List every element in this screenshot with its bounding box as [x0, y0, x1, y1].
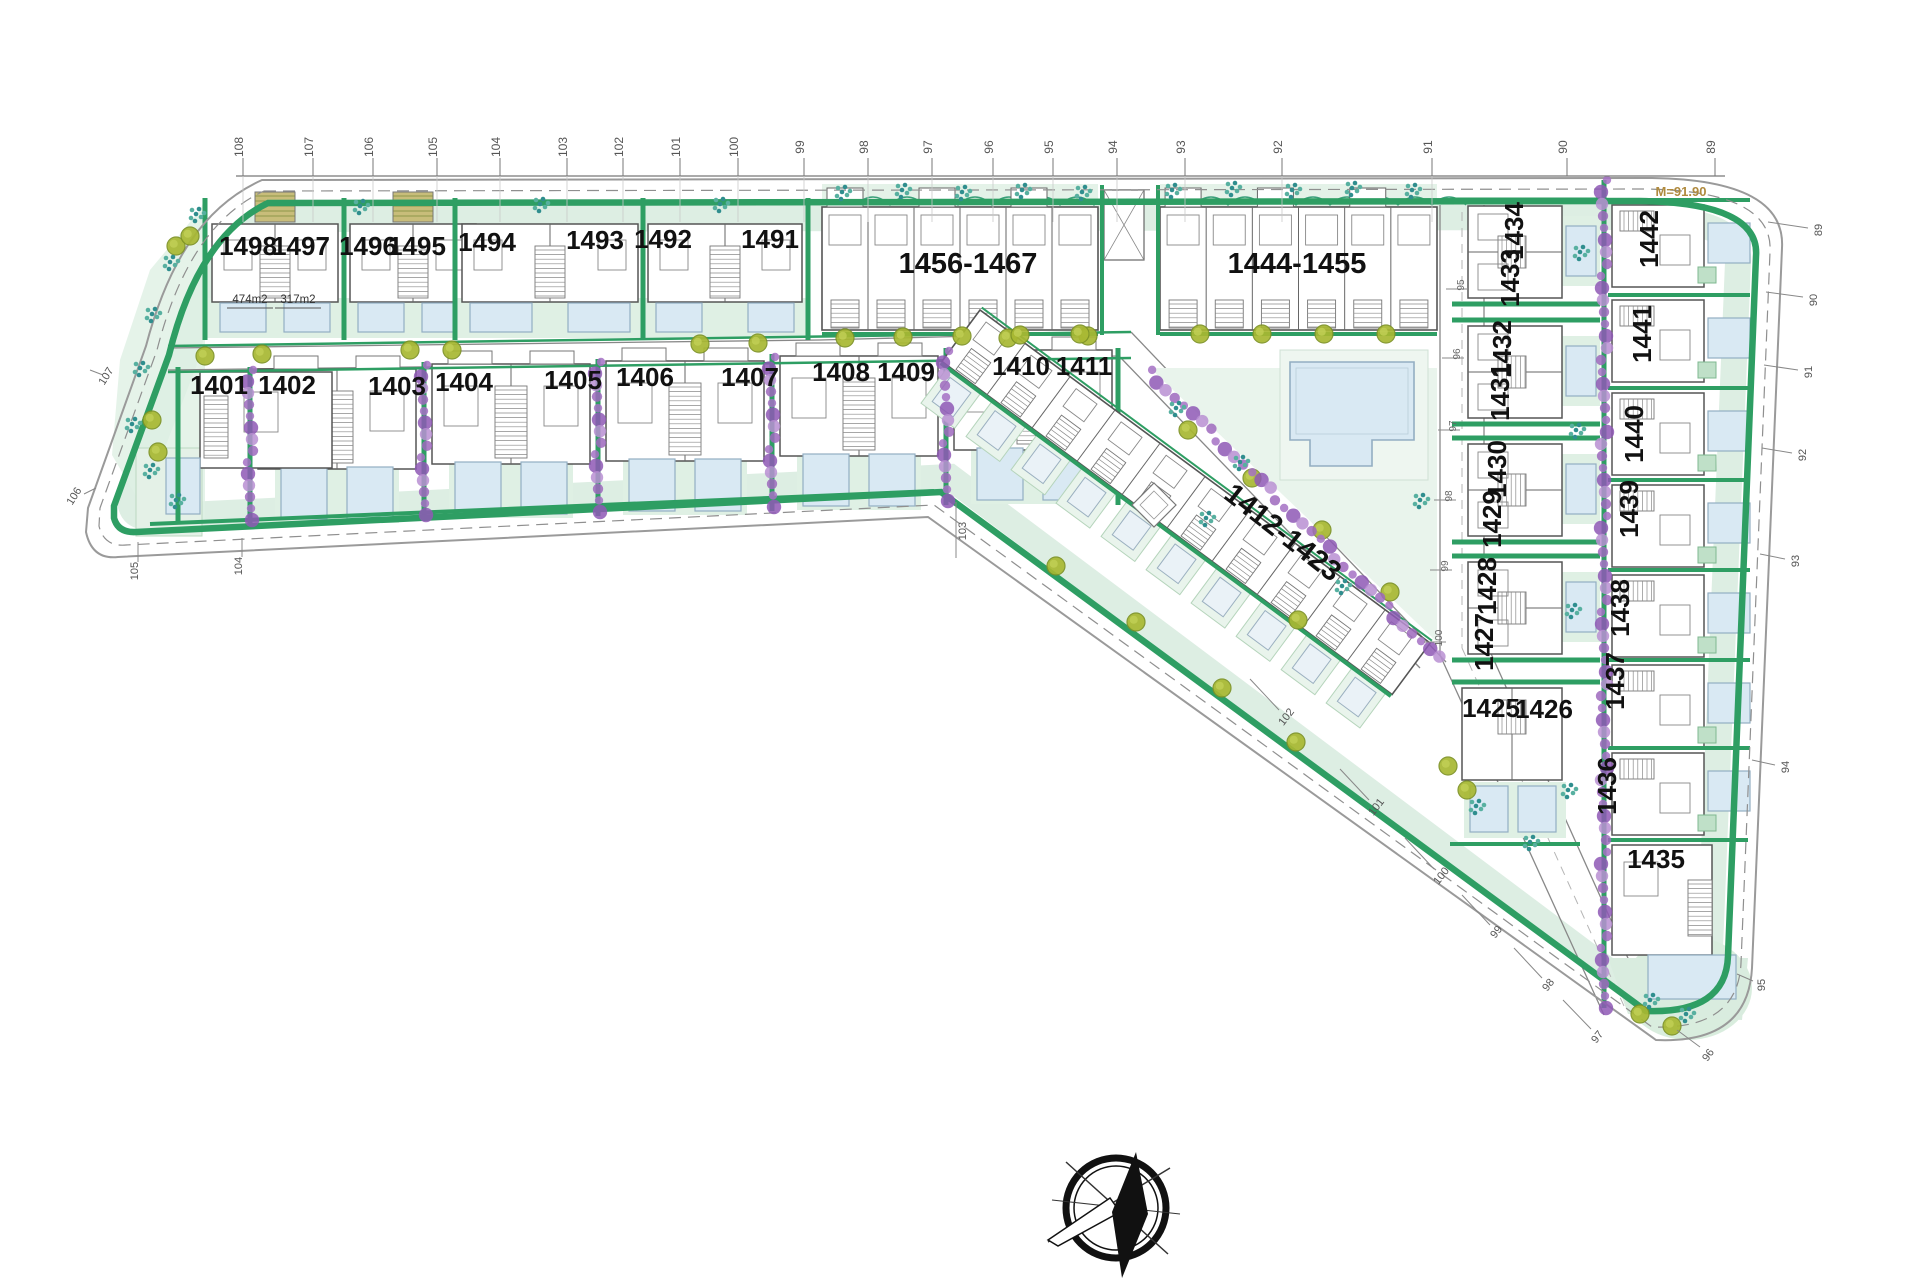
tree-icon	[1179, 421, 1197, 439]
plot-number: 1442	[1634, 210, 1664, 268]
block-number: 1444-1455	[1228, 248, 1367, 280]
tree-icon	[149, 443, 167, 461]
tree-icon	[1287, 733, 1305, 751]
stairs-hatch	[1061, 300, 1089, 328]
stairs-hatch	[535, 246, 565, 298]
stairs-hatch	[831, 300, 859, 328]
tree-icon	[196, 347, 214, 365]
tree-icon	[1315, 325, 1333, 343]
road-tick-label: 98	[1444, 490, 1455, 502]
area-label: 474m2	[232, 294, 267, 306]
stairs-hatch	[1400, 300, 1428, 328]
stairs-hatch	[1688, 880, 1712, 936]
stairs-hatch	[1169, 300, 1197, 328]
site-plan-canvas: 1081071061051041031021011009998979695949…	[0, 0, 1920, 1280]
edge-tick-label: 89	[1813, 224, 1825, 236]
area-label: 317m2	[280, 294, 315, 306]
ruler-label: 91	[1421, 140, 1435, 154]
ruler-label: 99	[793, 140, 807, 154]
edge-tick-label: 90	[1808, 294, 1820, 306]
tree-icon	[836, 329, 854, 347]
stairs-hatch	[204, 396, 228, 458]
plot-number: 1425	[1462, 693, 1520, 723]
tree-icon	[1253, 325, 1271, 343]
tree-icon	[1213, 679, 1231, 697]
tree-icon	[1127, 613, 1145, 631]
plot-number: 1401	[190, 370, 248, 400]
plot-number: 1437	[1600, 652, 1630, 710]
road-tick-label: 95	[1456, 279, 1467, 291]
ruler-label: 107	[302, 137, 316, 157]
tree-icon	[749, 334, 767, 352]
road-tick-label: 97	[1448, 420, 1459, 432]
plot-number: 1406	[616, 362, 674, 392]
tree-icon	[1439, 757, 1457, 775]
tree-icon	[953, 327, 971, 345]
plot-number: 1491	[741, 224, 799, 254]
edge-tick-label: 93	[1790, 555, 1802, 567]
plot-number: 1438	[1605, 579, 1635, 637]
plan-root: 1081071061051041031021011009998979695949…	[0, 0, 1920, 1280]
plot-number: 1493	[566, 225, 624, 255]
ruler-label: 101	[669, 137, 683, 157]
stairs-hatch	[923, 300, 951, 328]
road-tick-label: 96	[1452, 348, 1463, 360]
plot-number: 1498	[219, 231, 277, 261]
stairs-hatch	[1354, 300, 1382, 328]
tree-icon	[401, 341, 419, 359]
plot-number: 1492	[634, 224, 692, 254]
plot-number: 1402	[258, 370, 316, 400]
stairs-hatch	[1015, 300, 1043, 328]
stairs-hatch	[1308, 300, 1336, 328]
tree-icon	[1011, 326, 1029, 344]
ruler-label: 103	[556, 137, 570, 157]
tree-icon	[1047, 557, 1065, 575]
ruler-label: 102	[612, 137, 626, 157]
plot-number: 1435	[1627, 844, 1685, 874]
tree-icon	[181, 227, 199, 245]
tree-icon	[1663, 1017, 1681, 1035]
stairs-hatch	[1620, 759, 1654, 779]
ruler-label: 97	[921, 140, 935, 154]
tree-icon	[894, 328, 912, 346]
plot-number: 1440	[1619, 405, 1649, 463]
edge-tick-label: 95	[1756, 979, 1768, 991]
stairs-hatch	[669, 383, 701, 455]
plot-number: 1408	[812, 357, 870, 387]
ruler-label: 89	[1704, 140, 1718, 154]
ruler-label: 106	[362, 137, 376, 157]
plot-number: 1431	[1485, 363, 1515, 421]
stairs-hatch	[495, 386, 527, 458]
plot-number: 1411	[1056, 351, 1112, 381]
stairs-hatch	[1215, 300, 1243, 328]
plot-number: 1405	[544, 365, 602, 395]
edge-tick-label: 91	[1803, 366, 1815, 378]
plot-number: 1436	[1592, 757, 1622, 815]
edge-tick-label: 103	[957, 522, 969, 540]
tree-icon	[443, 341, 461, 359]
stairs-hatch	[1498, 592, 1526, 624]
road-tick-label: 99	[1440, 560, 1451, 572]
plot-number: 1439	[1614, 480, 1644, 538]
ruler-label: 93	[1174, 140, 1188, 154]
ruler-label: 92	[1271, 140, 1285, 154]
plot-number: 1407	[721, 362, 779, 392]
tree-icon	[691, 335, 709, 353]
stairs-hatch	[1261, 300, 1289, 328]
plot-number: 1429	[1477, 490, 1507, 548]
edge-tick-label: 105	[129, 562, 141, 580]
tree-icon	[253, 345, 271, 363]
ruler-label: 90	[1556, 140, 1570, 154]
level-annotation: M=91.90	[1656, 184, 1707, 199]
stairs-hatch	[710, 246, 740, 298]
tree-icon	[1458, 781, 1476, 799]
tree-icon	[1191, 325, 1209, 343]
plot-number: 1428	[1472, 557, 1502, 615]
ruler-label: 94	[1106, 140, 1120, 154]
ruler-label: 108	[232, 137, 246, 157]
ruler-label: 104	[489, 137, 503, 157]
edge-tick-label: 94	[1780, 761, 1792, 773]
tree-icon	[1071, 325, 1089, 343]
tree-icon	[1377, 325, 1395, 343]
plot-number: 1410	[992, 351, 1050, 381]
tree-icon	[1631, 1005, 1649, 1023]
ruler-label: 96	[982, 140, 996, 154]
stairs-hatch	[843, 378, 875, 450]
stairs-hatch	[877, 300, 905, 328]
plot-number: 1497	[272, 231, 330, 261]
plot-number: 1494	[458, 227, 516, 257]
plot-number: 1404	[435, 367, 493, 397]
edge-tick-label: 104	[233, 557, 245, 575]
masterplan-drawing: 1081071061051041031021011009998979695949…	[0, 0, 1920, 1280]
ruler-label: 95	[1042, 140, 1056, 154]
tree-icon	[1289, 611, 1307, 629]
plot-number: 1403	[368, 371, 426, 401]
plot-number: 1433	[1495, 249, 1525, 307]
plot-number: 1427	[1469, 613, 1499, 671]
plot-number: 1441	[1627, 305, 1657, 363]
edge-tick-label: 92	[1797, 449, 1809, 461]
ruler-label: 100	[727, 137, 741, 157]
block-number: 1456-1467	[899, 248, 1038, 280]
tree-icon	[143, 411, 161, 429]
plot-number: 1426	[1515, 694, 1573, 724]
plot-number: 1495	[388, 231, 446, 261]
plot-number: 1409	[877, 357, 935, 387]
ruler-label: 98	[857, 140, 871, 154]
plot-number: 1430	[1482, 440, 1512, 498]
road-tick-label: 100	[1434, 629, 1445, 646]
ruler-label: 105	[426, 137, 440, 157]
